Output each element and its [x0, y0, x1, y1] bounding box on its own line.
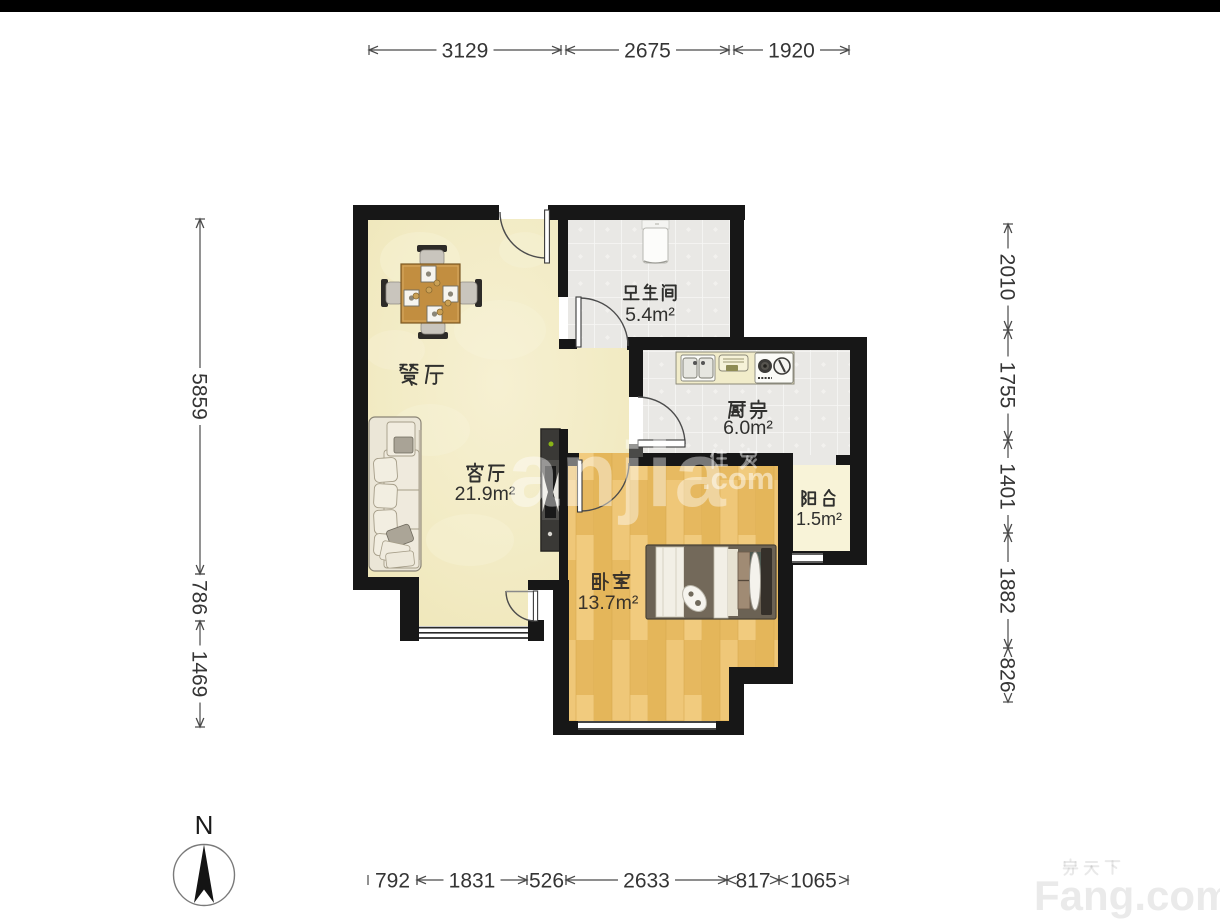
svg-text:792: 792: [375, 870, 410, 893]
svg-text:1920: 1920: [768, 40, 815, 63]
svg-text:1882: 1882: [995, 567, 1018, 614]
svg-text:5.4m²: 5.4m²: [625, 304, 675, 326]
svg-text:1469: 1469: [187, 651, 210, 698]
svg-text:1065: 1065: [790, 870, 837, 893]
svg-text:1831: 1831: [449, 870, 496, 893]
svg-text:526: 526: [529, 870, 564, 893]
svg-text:1755: 1755: [995, 362, 1018, 409]
svg-text:N: N: [195, 810, 214, 840]
svg-text:2010: 2010: [995, 254, 1018, 301]
svg-text:817: 817: [735, 870, 770, 893]
svg-text:5859: 5859: [187, 373, 210, 420]
svg-text:21.9m²: 21.9m²: [455, 483, 516, 505]
svg-text:6.0m²: 6.0m²: [723, 417, 773, 439]
svg-text:3129: 3129: [442, 40, 489, 63]
svg-text:2633: 2633: [623, 870, 670, 893]
svg-text:1401: 1401: [995, 463, 1018, 510]
svg-text:1.5m²: 1.5m²: [796, 509, 842, 529]
svg-text:826: 826: [995, 657, 1018, 692]
svg-text:2675: 2675: [624, 40, 671, 63]
svg-text:786: 786: [187, 580, 210, 615]
svg-text:Fang.com: Fang.com: [1034, 872, 1220, 919]
svg-text:anjia: anjia: [508, 424, 728, 526]
svg-text:13.7m²: 13.7m²: [578, 592, 639, 614]
